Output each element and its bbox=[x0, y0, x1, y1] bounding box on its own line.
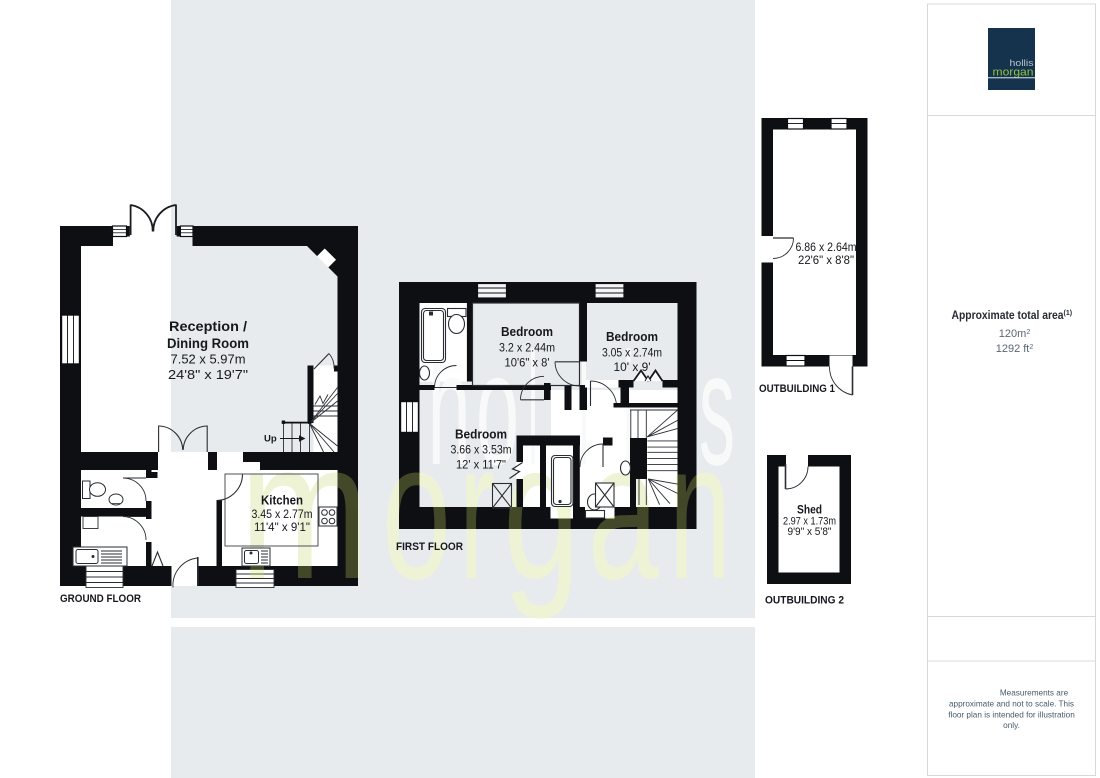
svg-text:10'6" x 8': 10'6" x 8' bbox=[505, 358, 550, 370]
svg-text:Reception /: Reception / bbox=[169, 319, 247, 334]
svg-text:Measurements are: Measurements are bbox=[1000, 689, 1069, 698]
svg-text:1292 ft2: 1292 ft2 bbox=[996, 343, 1034, 355]
svg-text:floor plan is intended for ill: floor plan is intended for illustration bbox=[948, 711, 1075, 720]
svg-text:6.86 x 2.64m: 6.86 x 2.64m bbox=[796, 242, 857, 254]
svg-text:12' x 11'7": 12' x 11'7" bbox=[456, 460, 506, 472]
svg-text:Bedroom: Bedroom bbox=[606, 330, 658, 344]
svg-text:approximate and not to scale.: approximate and not to scale. This bbox=[949, 700, 1074, 709]
svg-text:Bedroom: Bedroom bbox=[455, 428, 507, 442]
svg-text:3.2 x 2.44m: 3.2 x 2.44m bbox=[499, 343, 555, 355]
svg-text:Approximate total area(1): Approximate total area(1) bbox=[952, 308, 1073, 322]
svg-text:9'9" x 5'8": 9'9" x 5'8" bbox=[788, 526, 832, 538]
svg-text:10' x 9': 10' x 9' bbox=[614, 362, 651, 374]
svg-text:3.45 x 2.77m: 3.45 x 2.77m bbox=[252, 509, 313, 521]
svg-text:22'6" x 8'8": 22'6" x 8'8" bbox=[798, 255, 854, 267]
svg-text:24'8" x 19'7": 24'8" x 19'7" bbox=[168, 368, 248, 382]
svg-text:7.52 x 5.97m: 7.52 x 5.97m bbox=[171, 353, 246, 367]
svg-text:FIRST FLOOR: FIRST FLOOR bbox=[396, 541, 463, 553]
svg-text:Up: Up bbox=[264, 434, 277, 445]
svg-text:OUTBUILDING 2: OUTBUILDING 2 bbox=[765, 595, 844, 607]
svg-text:morgan: morgan bbox=[993, 67, 1034, 79]
svg-text:GROUND FLOOR: GROUND FLOOR bbox=[60, 593, 141, 605]
svg-text:Shed: Shed bbox=[797, 503, 822, 517]
svg-text:Kitchen: Kitchen bbox=[261, 494, 303, 508]
svg-text:Dining Room: Dining Room bbox=[167, 336, 249, 351]
svg-text:3.05 x 2.74m: 3.05 x 2.74m bbox=[602, 348, 662, 360]
svg-text:3.66 x 3.53m: 3.66 x 3.53m bbox=[451, 445, 512, 457]
svg-text:11'4" x 9'1": 11'4" x 9'1" bbox=[254, 522, 310, 534]
svg-text:OUTBUILDING 1: OUTBUILDING 1 bbox=[759, 383, 835, 395]
svg-text:Bedroom: Bedroom bbox=[501, 325, 553, 339]
svg-text:only.: only. bbox=[1003, 721, 1020, 730]
svg-text:120m2: 120m2 bbox=[999, 328, 1031, 340]
